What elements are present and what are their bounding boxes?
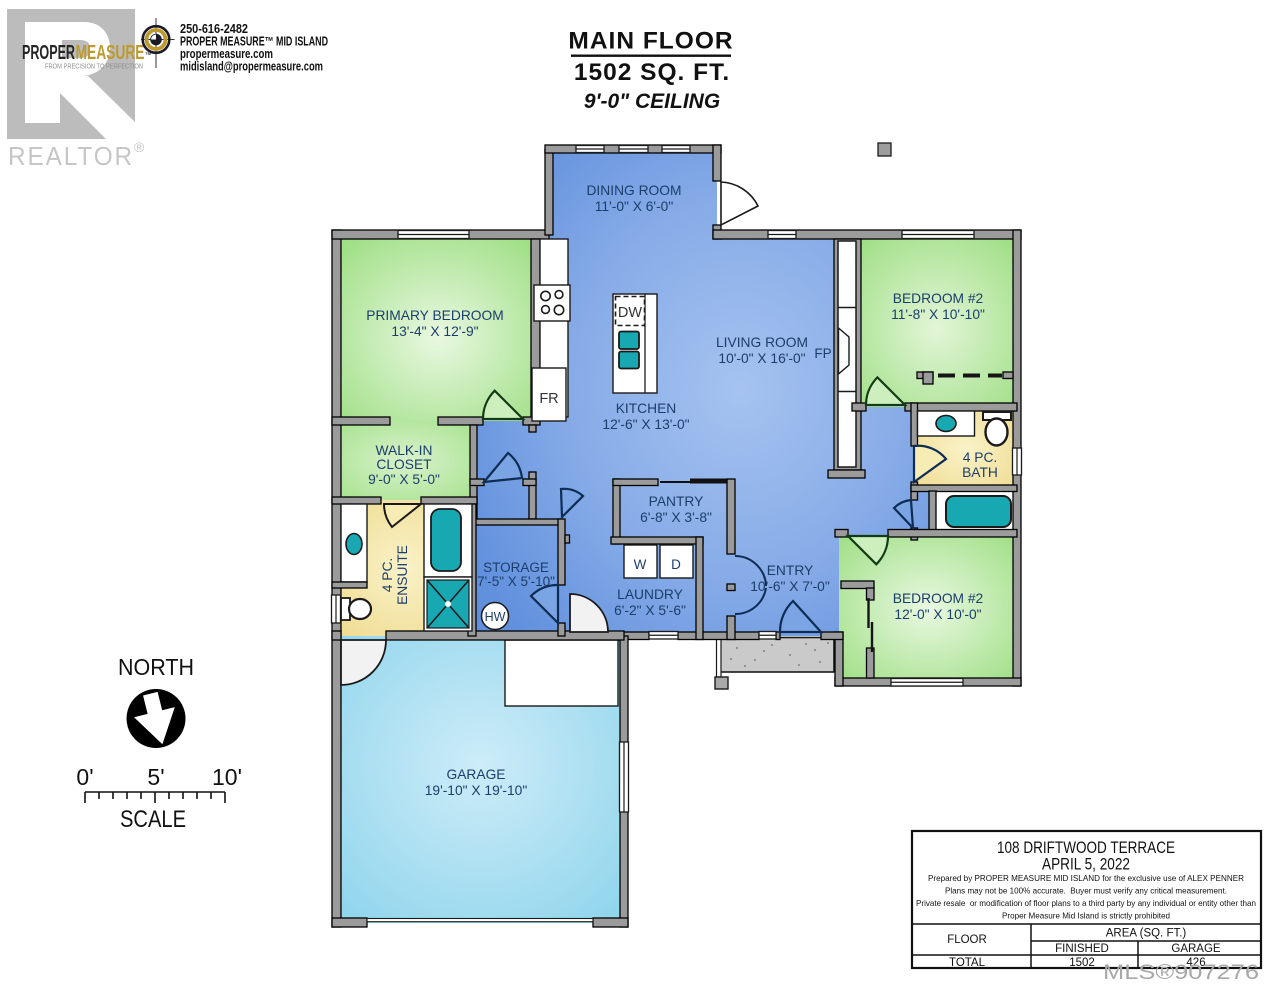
svg-text:REALTOR: REALTOR — [8, 143, 134, 171]
svg-text:BEDROOM #2: BEDROOM #2 — [893, 591, 983, 606]
svg-text:midisland@propermeasure.com: midisland@propermeasure.com — [180, 60, 323, 74]
svg-text:6'-8" X 3'-8": 6'-8" X 3'-8" — [640, 510, 712, 525]
svg-text:AREA (SQ. FT.): AREA (SQ. FT.) — [1106, 928, 1187, 940]
svg-text:MEASURE: MEASURE — [76, 42, 145, 64]
svg-text:1502: 1502 — [1069, 957, 1095, 969]
svg-text:1502 SQ. FT.: 1502 SQ. FT. — [574, 59, 730, 86]
svg-text:GARAGE: GARAGE — [1171, 943, 1221, 955]
svg-text:STORAGE: STORAGE — [483, 560, 549, 575]
svg-text:NORTH: NORTH — [118, 654, 194, 680]
svg-text:™: ™ — [145, 52, 152, 59]
svg-text:5': 5' — [147, 764, 164, 790]
svg-text:LAUNDRY: LAUNDRY — [617, 587, 683, 602]
svg-text:FLOOR: FLOOR — [947, 934, 987, 946]
svg-text:PRIMARY BEDROOM: PRIMARY BEDROOM — [366, 308, 503, 323]
svg-text:PROPER: PROPER — [22, 42, 75, 64]
svg-text:108 DRIFTWOOD TERRACE: 108 DRIFTWOOD TERRACE — [997, 839, 1175, 857]
svg-text:FR: FR — [539, 391, 558, 407]
svg-text:0': 0' — [76, 764, 93, 790]
svg-text:Prepared by PROPER MEASURE MID: Prepared by PROPER MEASURE MID ISLAND fo… — [928, 873, 1244, 883]
svg-text:ENSUITE: ENSUITE — [395, 545, 410, 605]
svg-text:BATH: BATH — [962, 465, 998, 480]
svg-text:APRIL 5, 2022: APRIL 5, 2022 — [1042, 856, 1130, 874]
svg-text:Plans may not be 100% accurate: Plans may not be 100% accurate. Buyer mu… — [945, 886, 1227, 896]
svg-text:LIVING ROOM: LIVING ROOM — [716, 335, 808, 350]
svg-text:TOTAL: TOTAL — [949, 957, 986, 969]
svg-text:DW: DW — [618, 305, 642, 321]
svg-text:FINISHED: FINISHED — [1055, 943, 1109, 955]
svg-text:DINING ROOM: DINING ROOM — [586, 183, 681, 198]
svg-text:11'-8" X 10'-10": 11'-8" X 10'-10" — [891, 307, 985, 322]
svg-text:FROM PRECISION TO PERFECTION: FROM PRECISION TO PERFECTION — [45, 63, 143, 70]
svg-text:HW: HW — [485, 610, 506, 624]
svg-text:WALK-IN: WALK-IN — [376, 443, 433, 458]
svg-text:CLOSET: CLOSET — [376, 457, 432, 472]
svg-text:PANTRY: PANTRY — [649, 494, 704, 509]
svg-text:Private resale or modificatio: Private resale or modification of floor … — [916, 898, 1256, 908]
svg-text:KITCHEN: KITCHEN — [616, 401, 677, 416]
svg-text:4 PC.: 4 PC. — [380, 558, 395, 593]
svg-text:10': 10' — [212, 764, 242, 790]
svg-text:®: ® — [134, 139, 145, 155]
svg-text:9'-0" X 5'-0": 9'-0" X 5'-0" — [368, 472, 440, 487]
svg-text:7'-5" X 5'-10": 7'-5" X 5'-10" — [477, 574, 555, 589]
svg-text:9'-0" CEILING: 9'-0" CEILING — [584, 90, 720, 113]
svg-text:D: D — [671, 557, 681, 572]
svg-text:MLS®907276: MLS®907276 — [1103, 961, 1259, 984]
svg-text:10'-0" X 16'-0": 10'-0" X 16'-0" — [718, 351, 805, 366]
svg-text:ENTRY: ENTRY — [767, 563, 814, 578]
svg-text:W: W — [634, 557, 647, 572]
svg-text:BEDROOM #2: BEDROOM #2 — [893, 291, 983, 306]
svg-text:13'-4" X 12'-9": 13'-4" X 12'-9" — [391, 324, 478, 339]
svg-text:19'-10" X 19'-10": 19'-10" X 19'-10" — [425, 783, 528, 798]
svg-text:Proper Measure Mid Island is s: Proper Measure Mid Island is strictly pr… — [1002, 911, 1170, 921]
svg-text:10'-6" X 7'-0": 10'-6" X 7'-0" — [750, 579, 830, 594]
svg-text:SCALE: SCALE — [120, 806, 186, 833]
svg-text:FP: FP — [814, 346, 831, 361]
svg-text:11'-0" X 6'-0": 11'-0" X 6'-0" — [595, 199, 674, 214]
svg-text:12'-0" X 10'-0": 12'-0" X 10'-0" — [894, 607, 981, 622]
svg-text:4 PC.: 4 PC. — [963, 450, 998, 465]
svg-text:MAIN FLOOR: MAIN FLOOR — [568, 28, 733, 55]
svg-text:6'-2" X 5'-6": 6'-2" X 5'-6" — [614, 603, 686, 618]
svg-text:12'-6" X 13'-0": 12'-6" X 13'-0" — [602, 417, 689, 432]
svg-text:GARAGE: GARAGE — [446, 767, 505, 782]
